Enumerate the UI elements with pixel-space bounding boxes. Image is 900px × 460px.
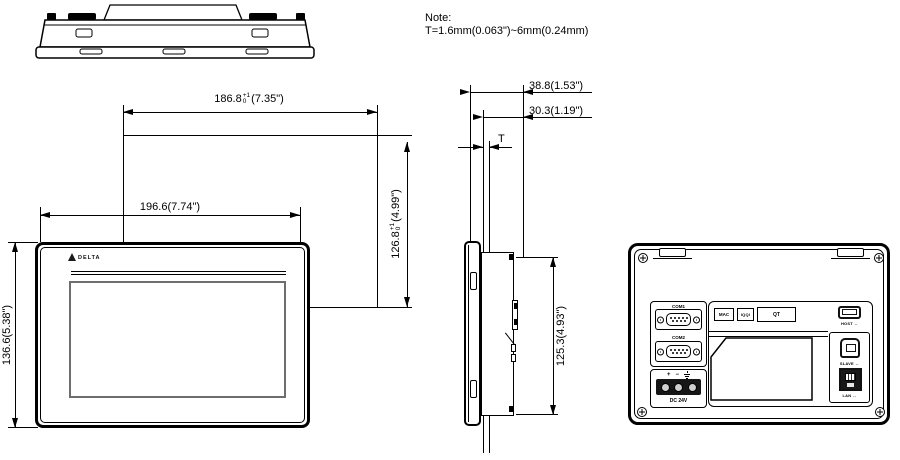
lan-label: LAN ↔ — [833, 392, 866, 399]
qt-sticker: QT — [757, 307, 796, 322]
dim-cutout-width-label: 186.8 +1 0 (7.35") — [214, 93, 284, 105]
screw-icon — [693, 316, 700, 323]
screw-icon — [657, 348, 664, 355]
brand-text: DELTA — [78, 255, 101, 261]
front-view-panel: DELTA — [35, 242, 310, 428]
dimension-arrow-icon — [404, 297, 410, 307]
side-connector-detail — [514, 303, 517, 309]
dim-inches: (4.99") — [390, 189, 402, 222]
dimension-arrow-icon — [460, 89, 470, 95]
db9-pin-field — [666, 313, 691, 326]
dim-mount-depth-label: 30.3(1.19") — [529, 105, 583, 117]
lan-text: LAN — [842, 393, 851, 398]
power-terminal-icon — [656, 379, 701, 395]
side-view-bezel — [464, 241, 481, 426]
dimension-arrow-icon — [12, 242, 18, 252]
side-connector-detail — [514, 319, 517, 325]
mounting-slot-flange — [831, 258, 870, 259]
mounting-slot — [837, 248, 864, 257]
mounting-slot — [659, 248, 686, 257]
lan-symbol-icon: ↔ — [852, 393, 856, 398]
dim-body-height-label: 125.3(4.93") — [555, 306, 567, 366]
note-body: T=1.6mm(0.063")~6mm(0.24mm) — [425, 25, 588, 38]
usb-a-icon — [838, 306, 861, 319]
touchscreen-area — [69, 281, 286, 398]
ground-icon — [684, 371, 690, 379]
screw-icon — [874, 253, 884, 263]
screw-icon — [657, 316, 664, 323]
dimension-arrow-icon — [367, 109, 377, 115]
com2-label: COM2 — [650, 334, 707, 340]
extension-line — [516, 257, 558, 258]
dim-value: 126.8 — [390, 231, 402, 259]
dimension-arrow-icon — [473, 114, 483, 120]
cutout-extension-line — [123, 105, 124, 242]
bezel-inner-line — [468, 245, 469, 422]
usb-b-icon — [840, 338, 860, 358]
dimension-line — [40, 215, 300, 216]
screw-icon — [875, 407, 885, 417]
dimension-arrow-icon — [123, 109, 133, 115]
mounting-slot-flange — [653, 258, 692, 259]
dimension-drawing-sheet: Note: T=1.6mm(0.063")~6mm(0.24mm) DELTA … — [0, 0, 900, 460]
top-view — [30, 2, 320, 62]
power-polarity-row: + − — [650, 371, 707, 378]
housing-detail — [509, 406, 514, 412]
plus-symbol: + — [667, 372, 671, 378]
minus-symbol: − — [676, 372, 680, 378]
mounting-plate-line — [489, 141, 490, 252]
extension-line — [470, 85, 471, 241]
extension-line — [8, 242, 38, 243]
usb-symbol-icon: ↔ — [855, 361, 859, 366]
dim-cutout-height-label: 126.8 +1 0 (4.99") — [390, 189, 402, 259]
tolerance-stack: +1 0 — [390, 223, 402, 230]
com1-db9-connector — [655, 309, 702, 330]
dim-value: 186.8 — [214, 93, 242, 105]
cutout-extension-line — [310, 307, 412, 308]
extension-line — [523, 85, 524, 257]
dimension-line — [553, 257, 554, 415]
bezel-accent-lines — [71, 271, 286, 275]
side-view-body — [481, 252, 514, 416]
dimension-line — [15, 242, 16, 428]
dimension-arrow-icon — [550, 257, 556, 267]
screw-icon — [637, 407, 647, 417]
extension-line — [40, 207, 41, 242]
side-connector-detail — [511, 344, 516, 352]
dim-total-depth-label: 38.8(1.53") — [529, 80, 583, 92]
dimension-arrow-icon — [404, 142, 410, 152]
rj45-icon — [839, 368, 862, 391]
dim-outer-height-label: 136.6(5.38") — [1, 305, 13, 365]
mounting-clip-slot — [470, 380, 477, 398]
dim-outer-width-label: 196.6(7.74") — [140, 201, 200, 213]
screw-icon — [638, 253, 648, 263]
dimension-arrow-icon — [40, 212, 50, 218]
mounting-plate-line — [483, 110, 484, 252]
iqqi-sticker: IQQI — [737, 308, 754, 321]
dc-24v-label: DC 24V — [650, 397, 707, 405]
dimension-line — [483, 117, 592, 118]
slave-text: SLAVE — [840, 361, 854, 366]
usb-symbol-icon: ↔ — [854, 321, 858, 326]
mounting-plate-line — [483, 416, 484, 453]
mounting-plate-line — [489, 416, 490, 453]
dimension-arrow-icon — [290, 212, 300, 218]
extension-line — [300, 207, 301, 242]
delta-triangle-icon — [68, 253, 76, 261]
side-connector-detail — [511, 354, 516, 362]
note-title: Note: — [425, 12, 451, 25]
tolerance-lower: 0 — [396, 227, 402, 231]
dim-panel-thickness-label: T — [498, 133, 505, 145]
db9-pin-field — [666, 345, 691, 358]
delta-logo: DELTA — [68, 253, 101, 261]
mac-sticker: MAC — [714, 308, 734, 321]
dimension-arrow-icon — [473, 144, 483, 150]
housing-detail — [509, 254, 514, 260]
host-text: HOST — [841, 321, 853, 326]
extension-line — [8, 427, 38, 428]
battery-cover — [710, 336, 824, 404]
com2-db9-connector — [655, 341, 702, 362]
dimension-line — [407, 142, 408, 307]
screw-icon — [693, 348, 700, 355]
extension-line — [516, 414, 558, 415]
mounting-clip-slot — [470, 272, 477, 290]
usb-slave-label: SLAVE ↔ — [831, 360, 868, 367]
cutout-extension-line — [123, 135, 412, 136]
dimension-line — [123, 112, 377, 113]
tolerance-stack: +1 0 — [243, 93, 250, 105]
tolerance-lower: 0 — [243, 99, 247, 105]
usb-host-label: HOST ↔ — [832, 320, 867, 327]
dim-inches: (7.35") — [251, 93, 284, 105]
